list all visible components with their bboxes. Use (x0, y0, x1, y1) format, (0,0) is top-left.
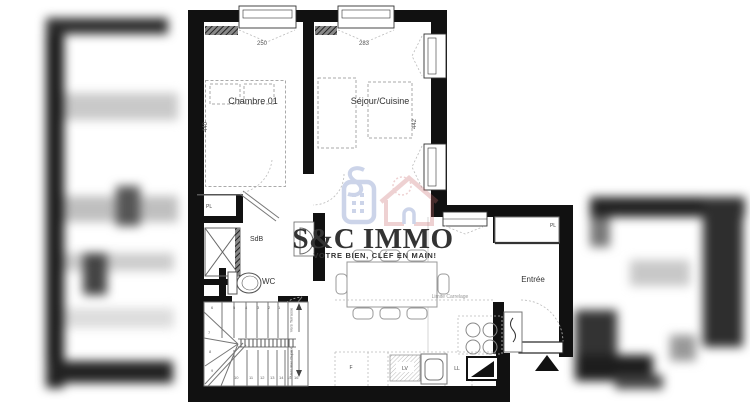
svg-text:10: 10 (234, 375, 239, 380)
bedroom-door-arc (241, 160, 272, 193)
threshold-symbol (467, 357, 498, 380)
dim-bedroom-depth: 440 (203, 121, 209, 132)
entrance-marker-triangle (535, 355, 559, 371)
entry-closet (495, 217, 559, 243)
svg-text:15: 15 (287, 375, 292, 380)
listing-photo: Chambre 01 250 440 PL Séjour/Cuisine 283… (0, 0, 750, 420)
svg-text:12: 12 (260, 375, 265, 380)
closet-label: PL (550, 223, 556, 229)
stairs-to-lower-label: Vers Bas Duplex (289, 347, 294, 377)
dim-living-width: 283 (359, 41, 370, 47)
svg-text:13: 13 (270, 375, 275, 380)
toilet (228, 272, 261, 294)
shutter-box (315, 26, 337, 35)
room-label-wc: WC (262, 277, 276, 286)
dining-table (336, 250, 449, 319)
closet-label: PL (206, 204, 212, 210)
window-bedroom (239, 6, 296, 42)
room-label-bedroom: Chambre 01 (228, 96, 278, 106)
bedroom: Chambre 01 250 440 PL (203, 41, 286, 210)
entry-door (519, 300, 563, 371)
window-living-top (338, 6, 394, 42)
svg-text:14: 14 (279, 375, 284, 380)
room-label-living: Séjour/Cuisine (351, 96, 410, 106)
stairs: Vers Terrasse Vers Bas Duplex 6 5 4 3 2 … (204, 302, 308, 386)
shutter-box (205, 26, 238, 35)
water-heater (504, 312, 522, 352)
dishwasher-label: LV (402, 366, 408, 372)
room-label-bathroom: SdB (250, 236, 264, 243)
fridge-label: F (349, 365, 352, 371)
agency-tagline: VOTRE BIEN, CLÉF EN MAIN! (313, 251, 436, 260)
tile-limit-label: Limite Carrelage (432, 294, 469, 300)
agency-logo-icon (344, 168, 437, 224)
bedroom-door-leaf (240, 194, 276, 221)
window-living-right-1 (412, 34, 446, 78)
entry: PL Entrée (495, 217, 559, 284)
floor-plan: Chambre 01 250 440 PL Séjour/Cuisine 283… (0, 0, 750, 420)
washer-label: LL (454, 366, 460, 372)
sofa (318, 78, 356, 148)
living-door-arc (313, 174, 344, 205)
dim-bedroom-width: 250 (257, 41, 268, 47)
dim-living-depth: 442 (412, 118, 418, 129)
stairs-to-terrace-label: Vers Terrasse (289, 307, 294, 332)
room-label-entry: Entrée (521, 275, 545, 284)
svg-text:16: 16 (294, 375, 299, 380)
